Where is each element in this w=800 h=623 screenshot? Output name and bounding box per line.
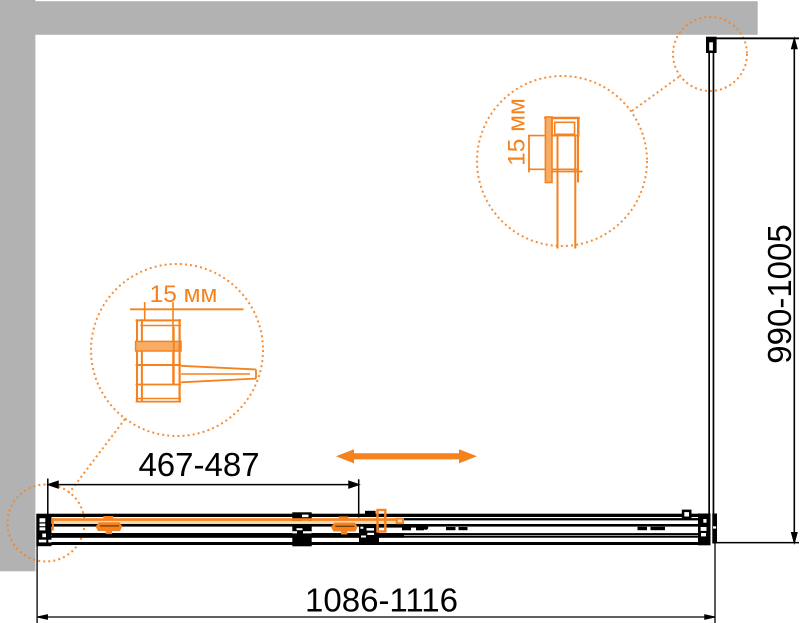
svg-text:15 мм: 15 мм (504, 98, 531, 166)
svg-text:15 мм: 15 мм (150, 281, 218, 308)
svg-text:467-487: 467-487 (138, 446, 259, 483)
svg-text:990-1005: 990-1005 (761, 224, 798, 363)
svg-text:1086-1116: 1086-1116 (305, 582, 458, 619)
